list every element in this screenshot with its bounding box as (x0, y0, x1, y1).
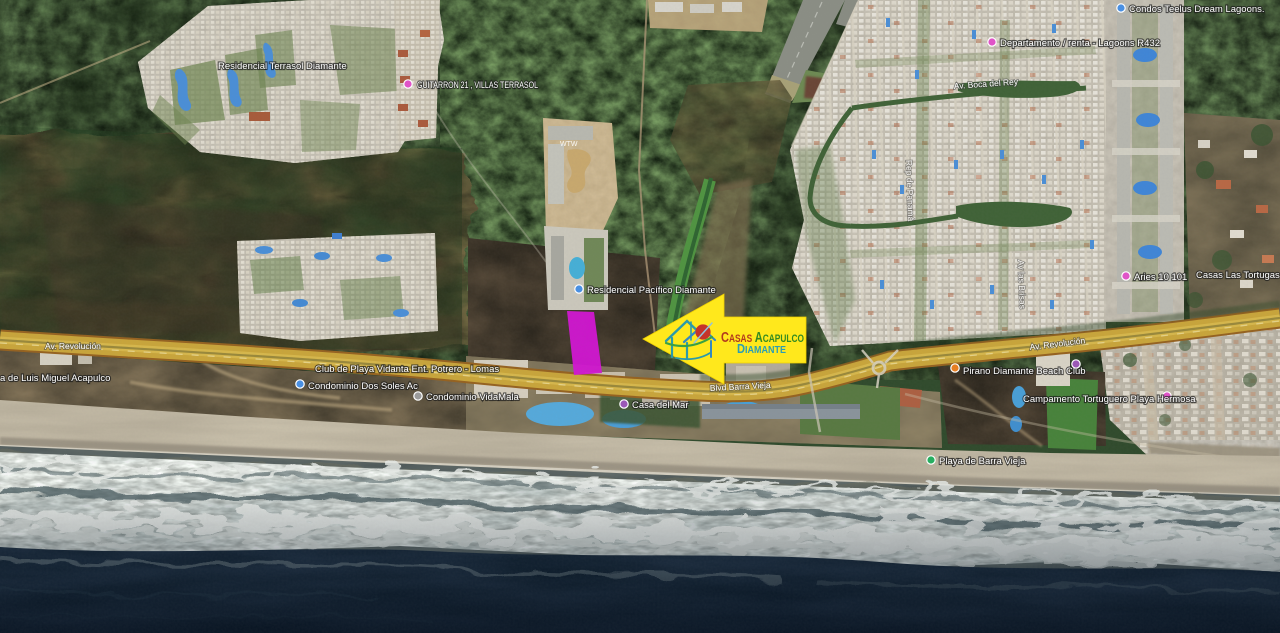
svg-text:Residencial Terrasol Diamante: Residencial Terrasol Diamante (218, 61, 347, 72)
svg-text:Campamento Tortuguero Playa H: Campamento Tortuguero Playa Hermosa (1023, 394, 1196, 405)
svg-text:GUITARRON 21 , VILLAS TERRASOL: GUITARRON 21 , VILLAS TERRASOL (417, 80, 538, 91)
svg-text:WTW: WTW (560, 141, 578, 148)
svg-text:Casa del Mar: Casa del Mar (632, 400, 689, 411)
svg-text:Condominio Dos Soles Ac: Condominio Dos Soles Ac (308, 381, 418, 392)
svg-text:DIAMANTE: DIAMANTE (737, 341, 786, 356)
svg-text:Club de Playa Vidanta Ent. Pot: Club de Playa Vidanta Ent. Potrero - Lom… (315, 364, 499, 375)
svg-text:Playa de Barra Vieja: Playa de Barra Vieja (939, 456, 1026, 467)
svg-text:Departamento / renta - Lagoons: Departamento / renta - Lagoons R432 (1000, 38, 1160, 49)
svg-text:Av. Revolución: Av. Revolución (45, 341, 101, 351)
svg-text:Casas Las Tortugas: Casas Las Tortugas (1196, 270, 1280, 281)
svg-text:Condos Teelus Dream Lagoons.: Condos Teelus Dream Lagoons. (1129, 4, 1265, 15)
svg-text:Av las Brisas: Av las Brisas (1016, 260, 1028, 309)
svg-text:Aries 10 101: Aries 10 101 (1134, 272, 1187, 283)
svg-text:Condominio VidaMala: Condominio VidaMala (426, 392, 519, 403)
svg-text:Residencial Pacífico Diamante: Residencial Pacífico Diamante (587, 285, 716, 296)
svg-text:a de Luis Miguel Acapulco: a de Luis Miguel Acapulco (0, 373, 110, 384)
svg-text:Pirano Diamante Beach Club: Pirano Diamante Beach Club (963, 366, 1086, 377)
